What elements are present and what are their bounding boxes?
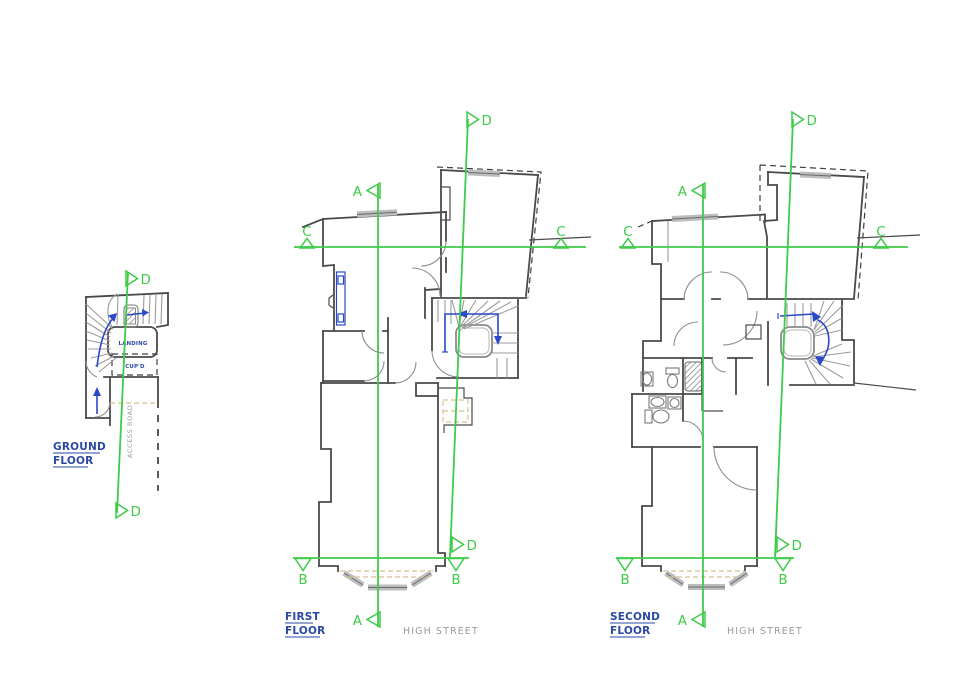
access-road-label: ACCESS ROAD bbox=[126, 405, 134, 458]
section-label-a-bottom: A bbox=[678, 613, 688, 629]
toilet-bowl bbox=[653, 410, 669, 423]
first-floor-stairs bbox=[432, 298, 526, 378]
section-label-b-left: B bbox=[298, 572, 307, 588]
ground-floor-plan: LANDING CUP'D ACCESS ROAD D D GROUND FLO… bbox=[53, 271, 168, 520]
section-label-b-right: B bbox=[778, 572, 787, 588]
high-street-label-second: HIGH STREET bbox=[727, 626, 803, 637]
section-label-d-top: D bbox=[482, 113, 492, 129]
section-lines-first: A A C C B B D D bbox=[293, 112, 586, 629]
first-floor-window-fixture bbox=[329, 272, 345, 325]
section-marker-b-left-icon bbox=[617, 559, 633, 571]
section-marker-d-bottom-icon bbox=[777, 537, 789, 552]
section-marker-b-right-icon bbox=[448, 559, 464, 571]
section-line-d bbox=[450, 119, 468, 557]
section-label-b-left: B bbox=[620, 572, 629, 588]
section-label-c-left: C bbox=[302, 224, 311, 240]
first-floor-title: FIRST FLOOR bbox=[285, 611, 325, 637]
section-label-d-top: D bbox=[807, 113, 817, 129]
ground-floor-title-line2: FLOOR bbox=[53, 455, 93, 467]
second-floor-title: SECOND FLOOR bbox=[610, 611, 660, 637]
landing-label: LANDING bbox=[119, 341, 148, 347]
high-street-label-first: HIGH STREET bbox=[403, 626, 479, 637]
stair-arrow-down bbox=[494, 336, 502, 345]
toilet-cistern bbox=[666, 368, 679, 374]
section-marker-d-bottom-icon bbox=[452, 537, 464, 552]
section-marker-b-left-icon bbox=[295, 559, 311, 571]
section-label-d-bottom: D bbox=[467, 538, 477, 554]
first-floor-title-line2: FLOOR bbox=[285, 625, 325, 637]
section-label-a-top: A bbox=[678, 184, 688, 200]
section-label-b-right: B bbox=[451, 572, 460, 588]
second-floor-bathroom-fixtures bbox=[641, 362, 702, 423]
section-label-a-bottom: A bbox=[353, 613, 363, 629]
second-floor-plan: A A C C B B D D SECOND FLOOR HIGH STREET bbox=[610, 112, 920, 637]
section-label-c-right: C bbox=[876, 224, 885, 240]
stair-arrow-down bbox=[815, 356, 825, 366]
section-label-d-bottom: D bbox=[792, 538, 802, 554]
section-label-d-bottom: D bbox=[131, 504, 141, 520]
cupboard-label: CUP'D bbox=[125, 364, 145, 370]
section-label-d-top: D bbox=[141, 272, 151, 288]
floor-plans-drawing: LANDING CUP'D ACCESS ROAD D D GROUND FLO… bbox=[0, 0, 976, 700]
first-floor-title-line1: FIRST bbox=[285, 611, 321, 623]
toilet-bowl bbox=[668, 375, 678, 388]
section-label-c-right: C bbox=[556, 224, 565, 240]
section-label-c-left: C bbox=[623, 224, 632, 240]
second-floor-title-line1: SECOND bbox=[610, 611, 660, 623]
toilet-cistern bbox=[645, 410, 652, 423]
floor-plan-sheet: LANDING CUP'D ACCESS ROAD D D GROUND FLO… bbox=[0, 0, 976, 700]
second-floor-stairs bbox=[746, 300, 854, 385]
ground-floor-title: GROUND FLOOR bbox=[53, 441, 106, 467]
section-lines-second: A A C C B B D D bbox=[616, 112, 908, 629]
first-floor-plan: A A C C B B D D FIRST FLOOR HIGH STREET bbox=[285, 112, 591, 637]
section-label-a-top: A bbox=[353, 184, 363, 200]
water-tank bbox=[685, 362, 702, 391]
ground-floor-title-line1: GROUND bbox=[53, 441, 106, 453]
second-floor-title-line2: FLOOR bbox=[610, 625, 650, 637]
section-marker-b-right-icon bbox=[775, 559, 791, 571]
stair-direction-path bbox=[445, 314, 498, 352]
